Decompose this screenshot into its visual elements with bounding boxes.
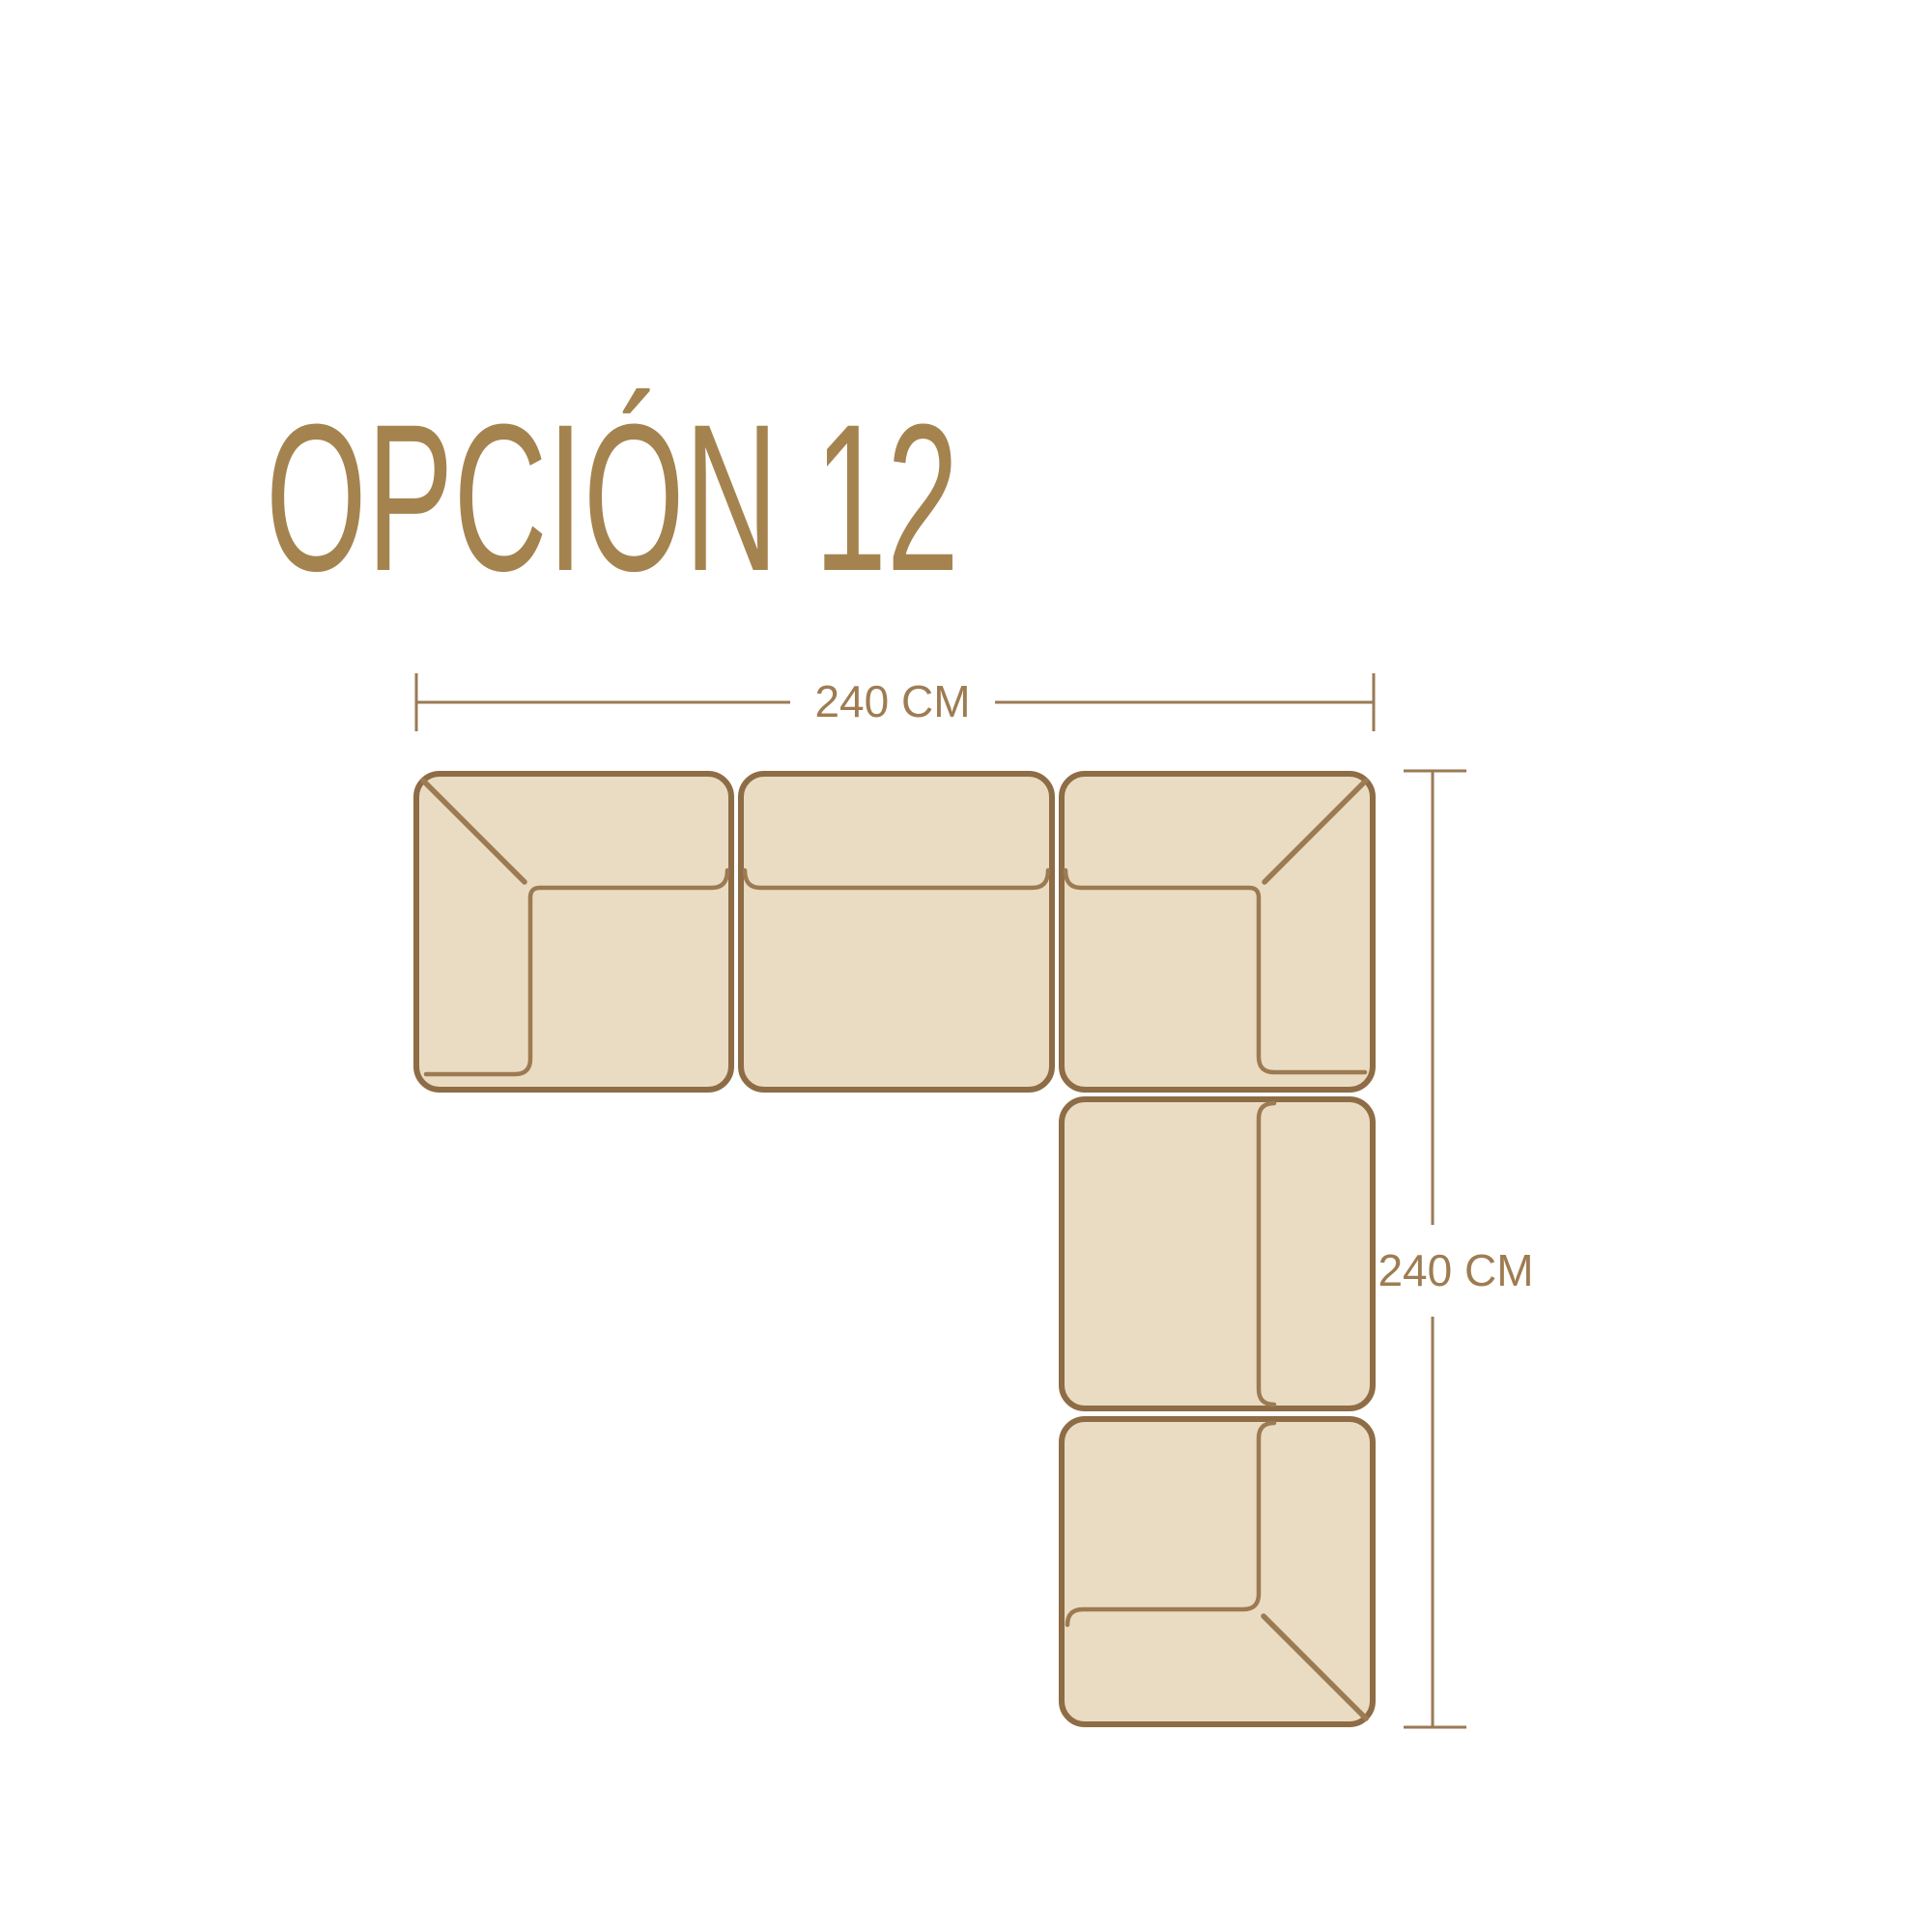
module-body [741, 774, 1052, 1090]
sofa-shape [416, 774, 1373, 1724]
module-corner-top-right [1062, 774, 1373, 1090]
module-body [1062, 1099, 1373, 1408]
module-corner-top-left [416, 774, 731, 1090]
width-dimension-label: 240 CM [814, 676, 970, 726]
module-center-top [741, 774, 1052, 1090]
module-corner-bottom-right [1062, 1419, 1373, 1724]
width-dimension: 240 CM [416, 673, 1374, 731]
sofa-layout-diagram: OPCIÓN 12 [0, 0, 1932, 1932]
height-dimension: 240 CM [1378, 771, 1533, 1727]
page-title: OPCIÓN 12 [266, 382, 959, 615]
height-dimension-label: 240 CM [1378, 1245, 1533, 1295]
module-middle-right [1062, 1099, 1373, 1408]
page: OPCIÓN 12 [0, 0, 1932, 1932]
